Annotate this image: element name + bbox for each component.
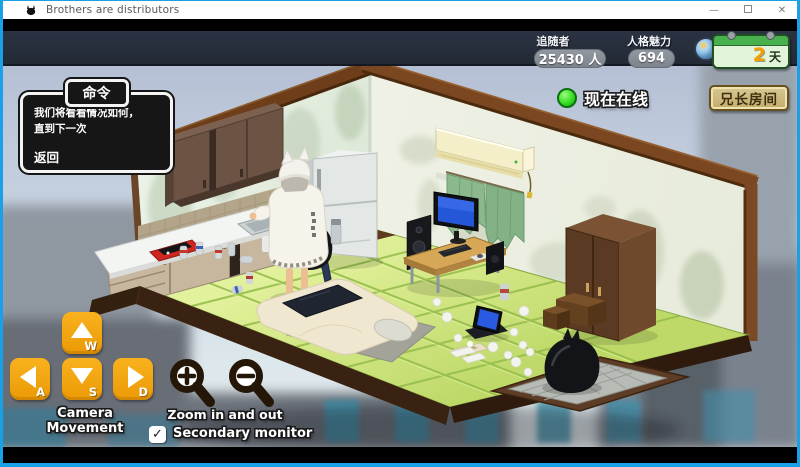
key-label-s: S [89,385,97,399]
charisma-value: 694 [628,49,675,68]
minimize-button[interactable]: — [707,5,721,16]
app-window: Brothers are distributors — ✕ [0,0,800,467]
game-viewport[interactable]: 追随者 25430 人 人格魅力 694 ☀ 2 天 现在在线 兄长房间 我们将… [3,19,797,463]
window-border-top [0,0,800,1]
dialog-title: 命令 [65,79,129,107]
camera-up-button[interactable]: W [62,312,102,354]
down-arrow-icon [71,368,93,384]
day-number: 2 [753,44,766,66]
spray-can [331,219,341,244]
maximize-button[interactable] [741,5,755,16]
left-arrow-icon [20,366,36,388]
zoom-out-button[interactable] [225,355,277,411]
checkmark-icon: ✓ [152,428,163,441]
key-label-w: W [84,339,97,353]
window-border-bottom [0,463,800,467]
calendar-peg [766,31,775,40]
title-bar: Brothers are distributors — ✕ [3,1,797,19]
day-calendar: 2 天 [712,34,790,69]
key-label-d: D [138,385,148,399]
window-title: Brothers are distributors [46,4,179,16]
command-dialog: 我们将看看情况如何， 直到下一次 返回 命令 [20,79,173,173]
camera-down-button[interactable]: S [62,358,102,400]
online-status: 现在在线 [557,86,648,110]
wardrobe [562,214,658,345]
floor-can-desk [500,284,509,300]
camera-movement-label: Camera Movement [17,406,153,436]
sun-icon: ☀ [699,41,708,52]
calendar-peg [727,31,736,40]
speaker-right [486,241,504,275]
charisma-label: 人格魅力 [618,33,680,49]
secondary-monitor-label: Secondary monitor [173,426,312,441]
followers-label: 追随者 [523,33,583,49]
followers-value: 25430 人 [534,49,606,68]
up-arrow-icon [71,322,93,338]
dialog-line-1: 我们将看看情况如何， [34,106,160,122]
online-label: 现在在线 [584,86,648,110]
camera-left-button[interactable]: A [10,358,50,400]
brother-room-button[interactable]: 兄长房间 [709,85,789,111]
day-unit: 天 [769,48,781,65]
window-border-left [0,0,3,467]
camera-right-button[interactable]: D [113,358,153,400]
letterbox-bar [3,447,797,463]
online-dot-icon [557,88,577,108]
zoom-in-button[interactable] [166,355,218,411]
zoom-label: Zoom in and out [166,407,284,422]
dialog-line-2: 直到下一次 [34,122,160,138]
key-label-a: A [36,385,45,399]
close-button[interactable]: ✕ [775,5,789,16]
secondary-monitor-checkbox[interactable]: ✓ [149,426,166,443]
dialog-back-button[interactable]: 返回 [34,147,160,166]
app-icon-rabbit [25,4,37,16]
maximize-icon [744,5,752,13]
